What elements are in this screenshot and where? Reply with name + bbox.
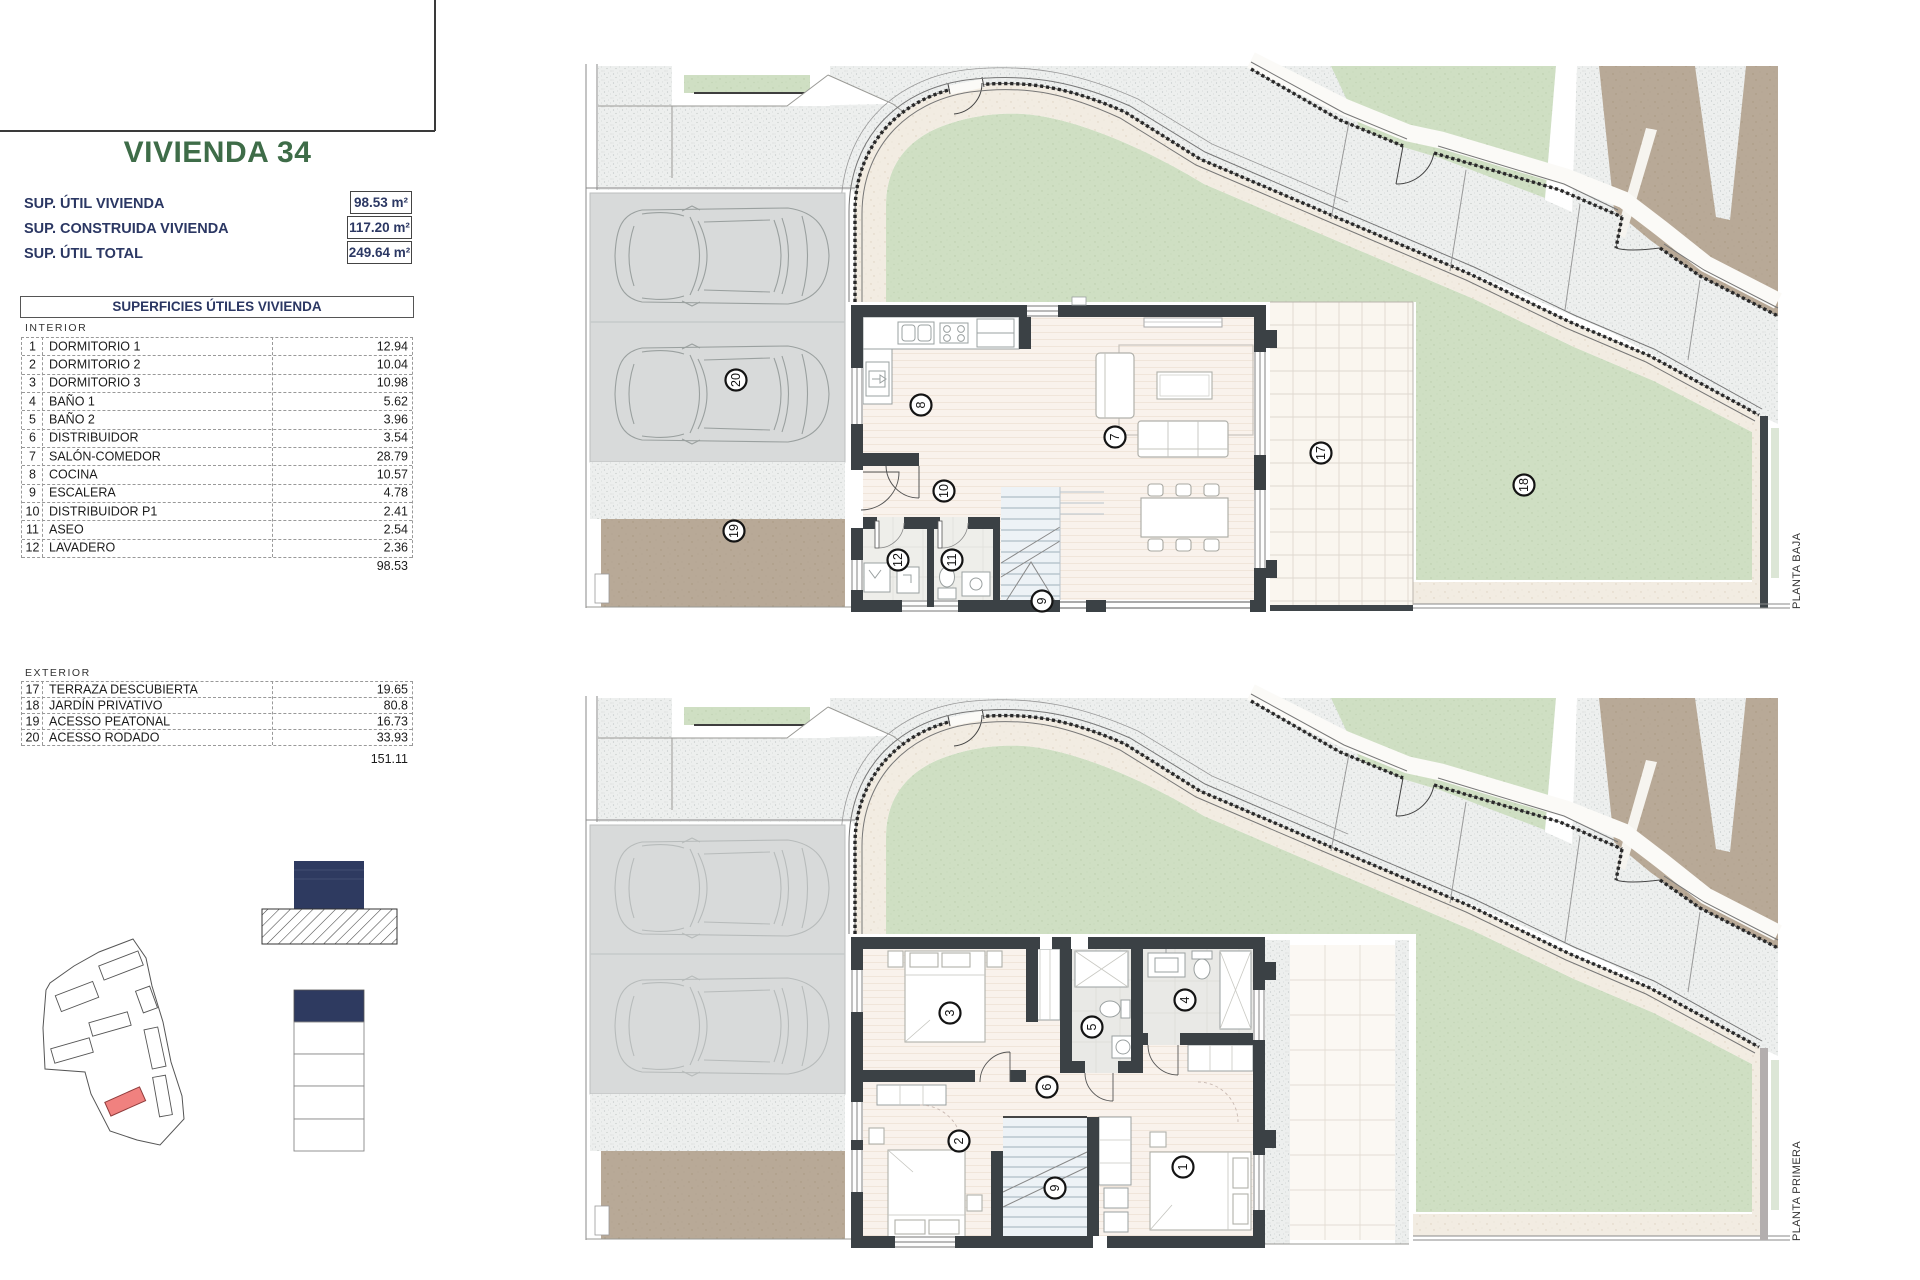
svg-text:20: 20 xyxy=(729,373,743,387)
svg-text:19: 19 xyxy=(727,524,741,538)
svg-text:9: 9 xyxy=(1048,1184,1062,1191)
svg-text:8: 8 xyxy=(914,401,928,408)
svg-text:4: 4 xyxy=(1178,996,1192,1003)
svg-text:7: 7 xyxy=(1108,433,1122,440)
svg-text:3: 3 xyxy=(943,1009,957,1016)
svg-text:1: 1 xyxy=(1176,1163,1190,1170)
svg-text:5: 5 xyxy=(1085,1023,1099,1030)
svg-text:12: 12 xyxy=(891,553,905,567)
svg-text:10: 10 xyxy=(937,484,951,498)
svg-text:9: 9 xyxy=(1035,597,1049,604)
svg-text:PLANTA BAJA: PLANTA BAJA xyxy=(1791,532,1803,609)
svg-text:PLANTA PRIMERA: PLANTA PRIMERA xyxy=(1791,1141,1803,1241)
svg-text:6: 6 xyxy=(1040,1083,1054,1090)
svg-text:17: 17 xyxy=(1314,446,1328,460)
svg-text:18: 18 xyxy=(1517,478,1531,492)
svg-text:2: 2 xyxy=(952,1137,966,1144)
svg-text:11: 11 xyxy=(945,553,959,566)
